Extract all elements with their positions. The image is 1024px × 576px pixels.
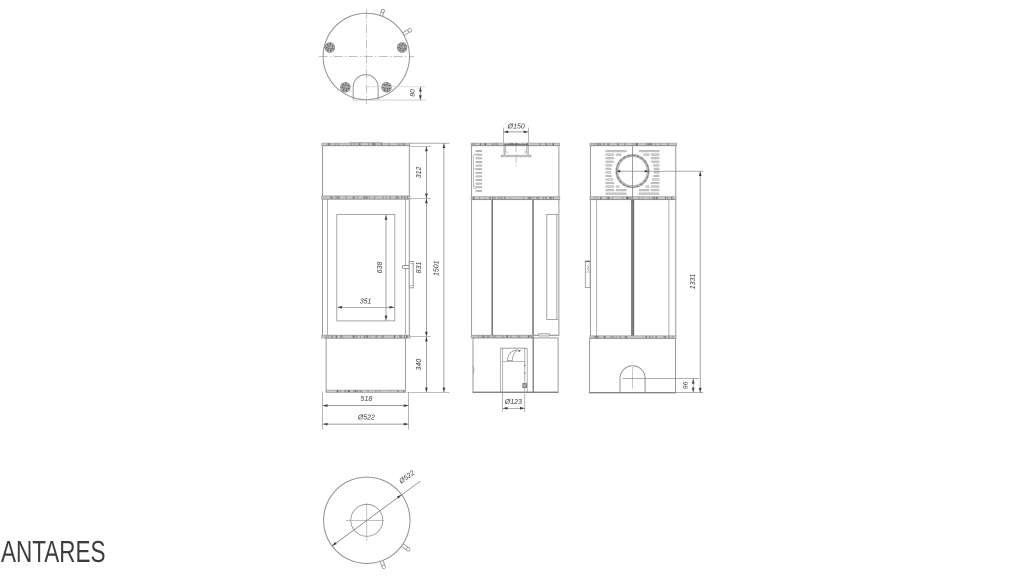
svg-text:80: 80 xyxy=(410,89,417,97)
svg-text:312: 312 xyxy=(416,166,423,178)
svg-text:351: 351 xyxy=(360,299,372,306)
svg-text:638: 638 xyxy=(377,262,384,274)
svg-text:Ø522: Ø522 xyxy=(357,415,375,422)
svg-text:340: 340 xyxy=(416,359,423,371)
svg-text:96: 96 xyxy=(683,381,690,389)
svg-text:Ø150: Ø150 xyxy=(507,124,525,131)
svg-text:Ø123: Ø123 xyxy=(504,399,522,406)
svg-text:831: 831 xyxy=(416,262,423,274)
svg-text:518: 518 xyxy=(361,396,373,403)
svg-text:1331: 1331 xyxy=(690,274,697,290)
svg-text:1501: 1501 xyxy=(433,260,440,276)
